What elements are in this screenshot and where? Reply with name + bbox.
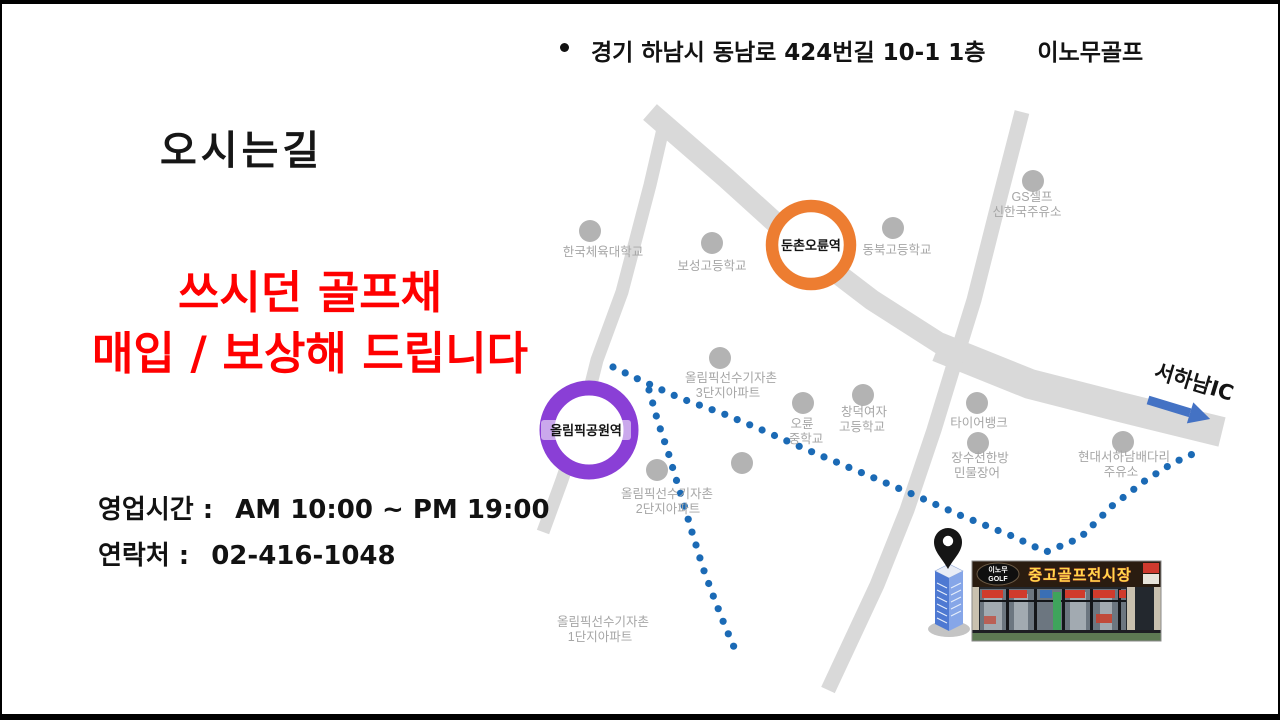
label-hyundai-gas: 현대서하남배다리 xyxy=(1078,450,1170,464)
route-dot xyxy=(908,490,915,497)
route-dot xyxy=(1019,538,1026,545)
route-dot xyxy=(688,529,695,536)
label-hyundai-gas: 주유소 xyxy=(1104,465,1139,479)
station-label-dunchon-oryun: 둔촌오륜역 xyxy=(781,238,841,253)
landmark-dot xyxy=(731,452,753,474)
route-dot xyxy=(1164,463,1171,470)
label-oryun-ms: 중학교 xyxy=(789,432,824,446)
route-dot xyxy=(1007,532,1014,539)
route-dot xyxy=(858,469,865,476)
contact-line: 연락처 :02-416-1048 xyxy=(98,535,396,572)
landmark-dot xyxy=(792,392,814,414)
storefront-photo: 이노무 GOLF 중고골프전시장 xyxy=(972,561,1161,641)
directions-slide: 경기 하남시 동남로 424번길 10-1 1층 이노무골프 오시는길 쓰시던 … xyxy=(0,0,1280,720)
route-dot xyxy=(1090,521,1097,528)
route-dot xyxy=(970,517,977,524)
label-tirebank: 타이어뱅크 xyxy=(950,416,1008,430)
route-dot xyxy=(645,386,652,393)
route-dot xyxy=(995,527,1002,534)
route-dot xyxy=(673,477,680,484)
route-dot xyxy=(710,593,717,600)
route-dot xyxy=(696,402,703,409)
ic-label: 서하남IC xyxy=(1152,359,1237,406)
route-dot xyxy=(746,421,753,428)
station-label-olympic-park: 올림픽공원역 xyxy=(550,423,622,438)
landmark-dot xyxy=(709,347,731,369)
route-dot xyxy=(1130,486,1137,493)
route-dot xyxy=(661,438,668,445)
route-dot xyxy=(634,375,641,382)
label-jangsucheon: 민물장어 xyxy=(954,466,1000,480)
route-dot xyxy=(709,406,716,413)
route-dot xyxy=(1099,512,1106,519)
route-dot xyxy=(833,459,840,466)
route-dot xyxy=(883,480,890,487)
label-korea-sport-univ: 한국체육대학교 xyxy=(563,245,644,259)
label-oryun-ms: 오륜 xyxy=(790,417,813,431)
route-dot xyxy=(685,516,692,523)
route-dot xyxy=(1120,494,1127,501)
route-dot xyxy=(683,397,690,404)
promo-line2: 매입 / 보상해 드립니다 xyxy=(85,323,535,384)
page-title: 오시는길 xyxy=(160,118,323,176)
route-dot xyxy=(609,363,616,370)
landmark-dot xyxy=(966,392,988,414)
map-pin-icon xyxy=(934,528,962,569)
route-dot xyxy=(932,501,939,508)
route-dot xyxy=(1069,538,1076,545)
store-sign-text: 중고골프전시장 xyxy=(1028,566,1132,584)
label-dongbuk-hs: 동북고등학교 xyxy=(862,243,931,257)
route-dot xyxy=(730,643,737,650)
route-dot xyxy=(725,630,732,637)
landmark-dot xyxy=(882,217,904,239)
route-dot xyxy=(700,567,707,574)
route-dot xyxy=(1044,548,1051,555)
route-dot xyxy=(771,432,778,439)
brand-name: 이노무골프 xyxy=(1037,33,1143,67)
route-dot xyxy=(982,522,989,529)
route-dot xyxy=(945,506,952,513)
route-dot xyxy=(1109,502,1116,509)
route-dot xyxy=(870,474,877,481)
landmark-dot xyxy=(579,220,601,242)
landmark-dot xyxy=(852,384,874,406)
route-dot xyxy=(734,416,741,423)
label-gs-station: GS셀프 xyxy=(1011,190,1052,204)
route-dot xyxy=(658,386,665,393)
route-dot xyxy=(845,464,852,471)
route-dot xyxy=(622,369,629,376)
route-dot xyxy=(1056,543,1063,550)
route-dot xyxy=(895,485,902,492)
route-dot xyxy=(649,399,656,406)
route-dot xyxy=(671,392,678,399)
route-dot xyxy=(920,495,927,502)
route-dot xyxy=(665,451,672,458)
route-dot xyxy=(820,453,827,460)
route-dot xyxy=(808,448,815,455)
label-apt2: 올림픽선수기자촌 xyxy=(621,487,713,501)
label-boseong-hs: 보성고등학교 xyxy=(677,259,746,273)
label-gs-station: 신한국주유소 xyxy=(992,205,1061,219)
route-dot xyxy=(1188,451,1195,458)
label-apt1: 1단지아파트 xyxy=(568,630,632,644)
route-dot xyxy=(669,464,676,471)
route-dot xyxy=(1176,457,1183,464)
landmark-dot xyxy=(701,232,723,254)
store-building-icon xyxy=(928,564,970,637)
route-dot xyxy=(657,425,664,432)
promo-line1: 쓰시던 골프채 xyxy=(85,262,535,323)
business-hours: 영업시간 :AM 10:00 ~ PM 19:00 xyxy=(98,489,550,526)
bullet-icon xyxy=(560,43,569,52)
route-dotted-branch xyxy=(645,386,737,649)
landmark-dot xyxy=(1022,170,1044,192)
label-changdeok-hs: 고등학교 xyxy=(839,420,885,434)
route-dot xyxy=(957,512,964,519)
landmark-dot xyxy=(646,459,668,481)
route-dot xyxy=(1141,478,1148,485)
address-line: 경기 하남시 동남로 424번길 10-1 1층 이노무골프 xyxy=(560,33,1143,67)
contact-label: 연락처 : xyxy=(98,541,189,571)
sign-brand-line2: GOLF xyxy=(988,576,1008,583)
route-dot xyxy=(720,618,727,625)
promo-text: 쓰시던 골프채 매입 / 보상해 드립니다 xyxy=(85,262,535,384)
label-apt1: 올림픽선수기자촌 xyxy=(557,615,649,629)
hours-value: AM 10:00 ~ PM 19:00 xyxy=(235,495,549,525)
contact-value: 02-416-1048 xyxy=(211,541,395,571)
route-dot xyxy=(1080,531,1087,538)
route-dot xyxy=(1032,543,1039,550)
route-dot xyxy=(653,412,660,419)
route-dot xyxy=(715,605,722,612)
label-changdeok-hs: 창덕여자 xyxy=(841,405,888,419)
address-text: 경기 하남시 동남로 424번길 10-1 1층 xyxy=(591,33,985,67)
sign-brand-line1: 이노무 xyxy=(988,565,1008,574)
label-apt3: 3단지아파트 xyxy=(696,386,760,400)
route-dot xyxy=(759,426,766,433)
route-dot xyxy=(1152,470,1159,477)
label-jangsucheon: 장수천한방 xyxy=(951,450,1009,465)
label-apt2: 2단지아파트 xyxy=(636,502,700,516)
hours-label: 영업시간 : xyxy=(98,495,213,525)
route-dot xyxy=(692,541,699,548)
label-apt3: 올림픽선수기자촌 xyxy=(685,371,777,385)
route-dot xyxy=(721,411,728,418)
route-dot xyxy=(696,554,703,561)
route-dot xyxy=(705,580,712,587)
